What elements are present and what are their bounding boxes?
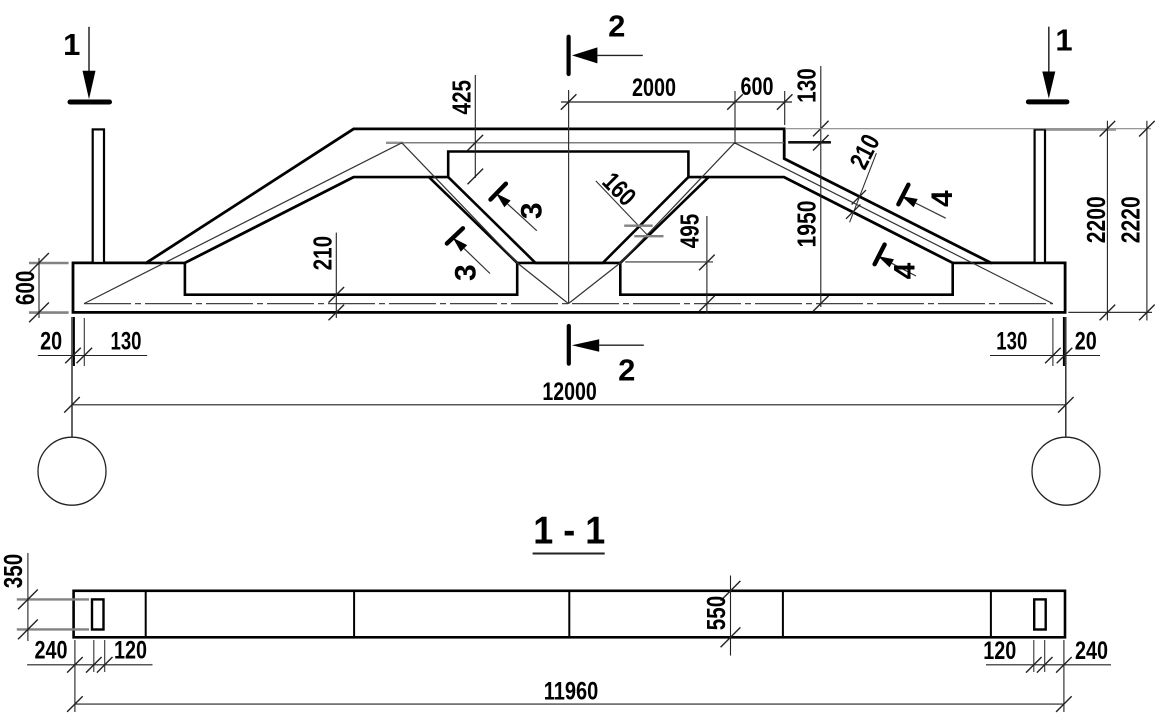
svg-text:240: 240 xyxy=(35,637,68,665)
svg-text:600: 600 xyxy=(10,271,40,306)
svg-text:2: 2 xyxy=(608,9,625,44)
svg-text:130: 130 xyxy=(791,68,821,103)
svg-text:2220: 2220 xyxy=(1116,196,1146,243)
svg-text:210: 210 xyxy=(308,236,338,271)
svg-text:4: 4 xyxy=(889,262,922,279)
svg-text:130: 130 xyxy=(111,327,142,355)
svg-text:120: 120 xyxy=(983,637,1016,665)
svg-text:495: 495 xyxy=(674,214,704,249)
svg-text:12000: 12000 xyxy=(542,378,597,406)
svg-text:240: 240 xyxy=(1075,637,1108,665)
svg-text:20: 20 xyxy=(1075,327,1097,355)
svg-text:2000: 2000 xyxy=(632,74,676,102)
svg-text:130: 130 xyxy=(996,327,1027,355)
svg-text:1: 1 xyxy=(63,27,80,62)
svg-text:550: 550 xyxy=(701,596,731,631)
svg-text:3: 3 xyxy=(515,202,548,219)
svg-text:1950: 1950 xyxy=(792,201,822,248)
svg-text:3: 3 xyxy=(450,264,483,281)
svg-text:11960: 11960 xyxy=(544,677,599,705)
svg-text:2: 2 xyxy=(618,353,635,388)
svg-text:350: 350 xyxy=(0,554,28,589)
svg-text:425: 425 xyxy=(447,80,477,115)
svg-text:120: 120 xyxy=(114,637,147,665)
svg-text:2200: 2200 xyxy=(1081,196,1111,243)
svg-text:600: 600 xyxy=(741,73,774,101)
svg-text:4: 4 xyxy=(926,190,959,207)
svg-text:1: 1 xyxy=(1055,23,1072,58)
svg-text:1 - 1: 1 - 1 xyxy=(533,510,605,553)
svg-text:20: 20 xyxy=(40,327,62,355)
